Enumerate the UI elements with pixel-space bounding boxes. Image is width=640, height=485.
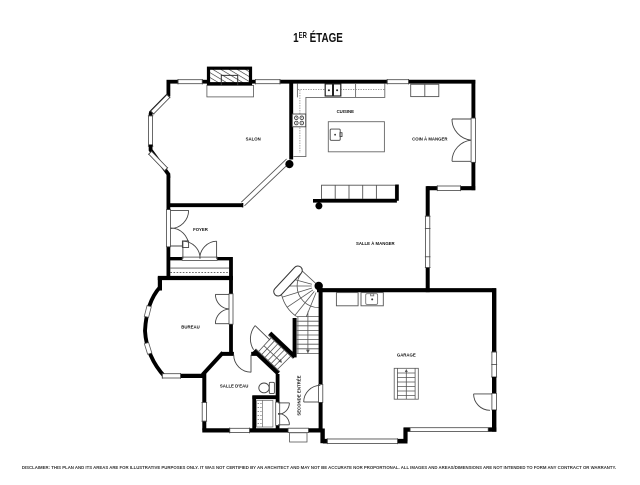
svg-text:SALON: SALON [246, 136, 261, 141]
svg-text:FOYER: FOYER [193, 227, 209, 232]
svg-text:DISCLAIMER: THIS PLAN AND ITS: DISCLAIMER: THIS PLAN AND ITS AREAS ARE … [22, 465, 616, 470]
svg-text:SALLE D'EAU: SALLE D'EAU [220, 384, 248, 389]
svg-text:GARAGE: GARAGE [397, 353, 416, 358]
svg-text:SECONDE ENTRÉE: SECONDE ENTRÉE [297, 375, 302, 415]
svg-text:CUISINE: CUISINE [337, 109, 355, 114]
svg-text:COIN À MANGER: COIN À MANGER [412, 137, 448, 142]
svg-text:SALLE À MANGER: SALLE À MANGER [356, 241, 396, 246]
svg-text:BUREAU: BUREAU [181, 325, 199, 330]
